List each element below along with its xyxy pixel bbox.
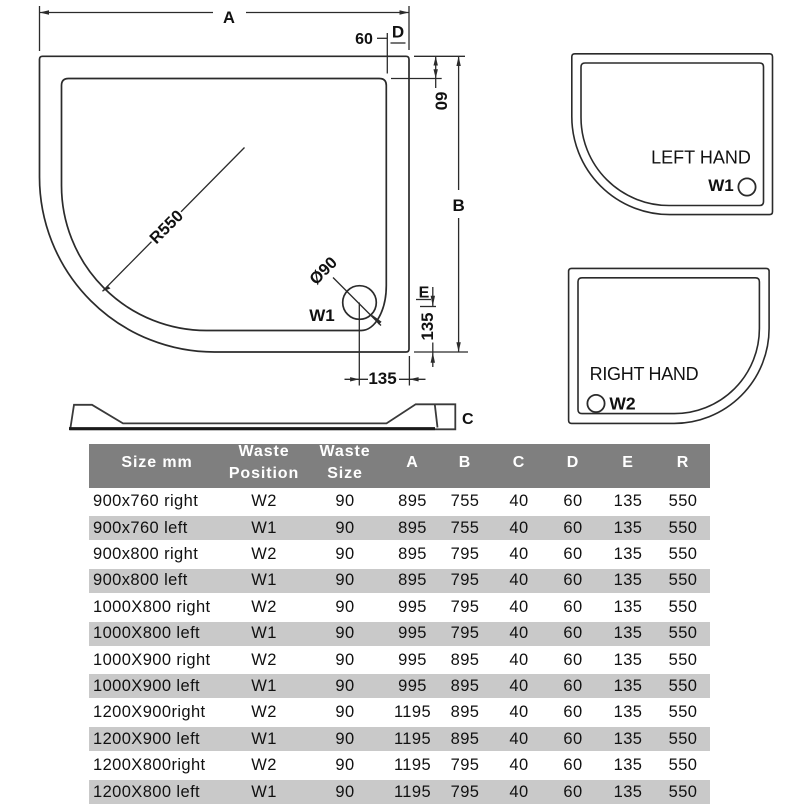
svg-text:LEFT HAND: LEFT HAND — [651, 148, 751, 168]
svg-text:W1: W1 — [309, 306, 335, 325]
svg-text:D: D — [392, 23, 404, 42]
svg-text:A: A — [223, 9, 235, 27]
svg-text:B: B — [452, 196, 464, 215]
svg-text:W1: W1 — [708, 176, 734, 195]
svg-text:60: 60 — [432, 92, 451, 111]
svg-text:W2: W2 — [609, 394, 636, 414]
svg-text:135: 135 — [418, 313, 437, 341]
svg-text:135: 135 — [368, 369, 396, 388]
svg-text:RIGHT HAND: RIGHT HAND — [590, 364, 699, 384]
svg-text:60: 60 — [355, 31, 373, 48]
svg-text:C: C — [462, 411, 474, 428]
svg-text:E: E — [419, 285, 430, 302]
